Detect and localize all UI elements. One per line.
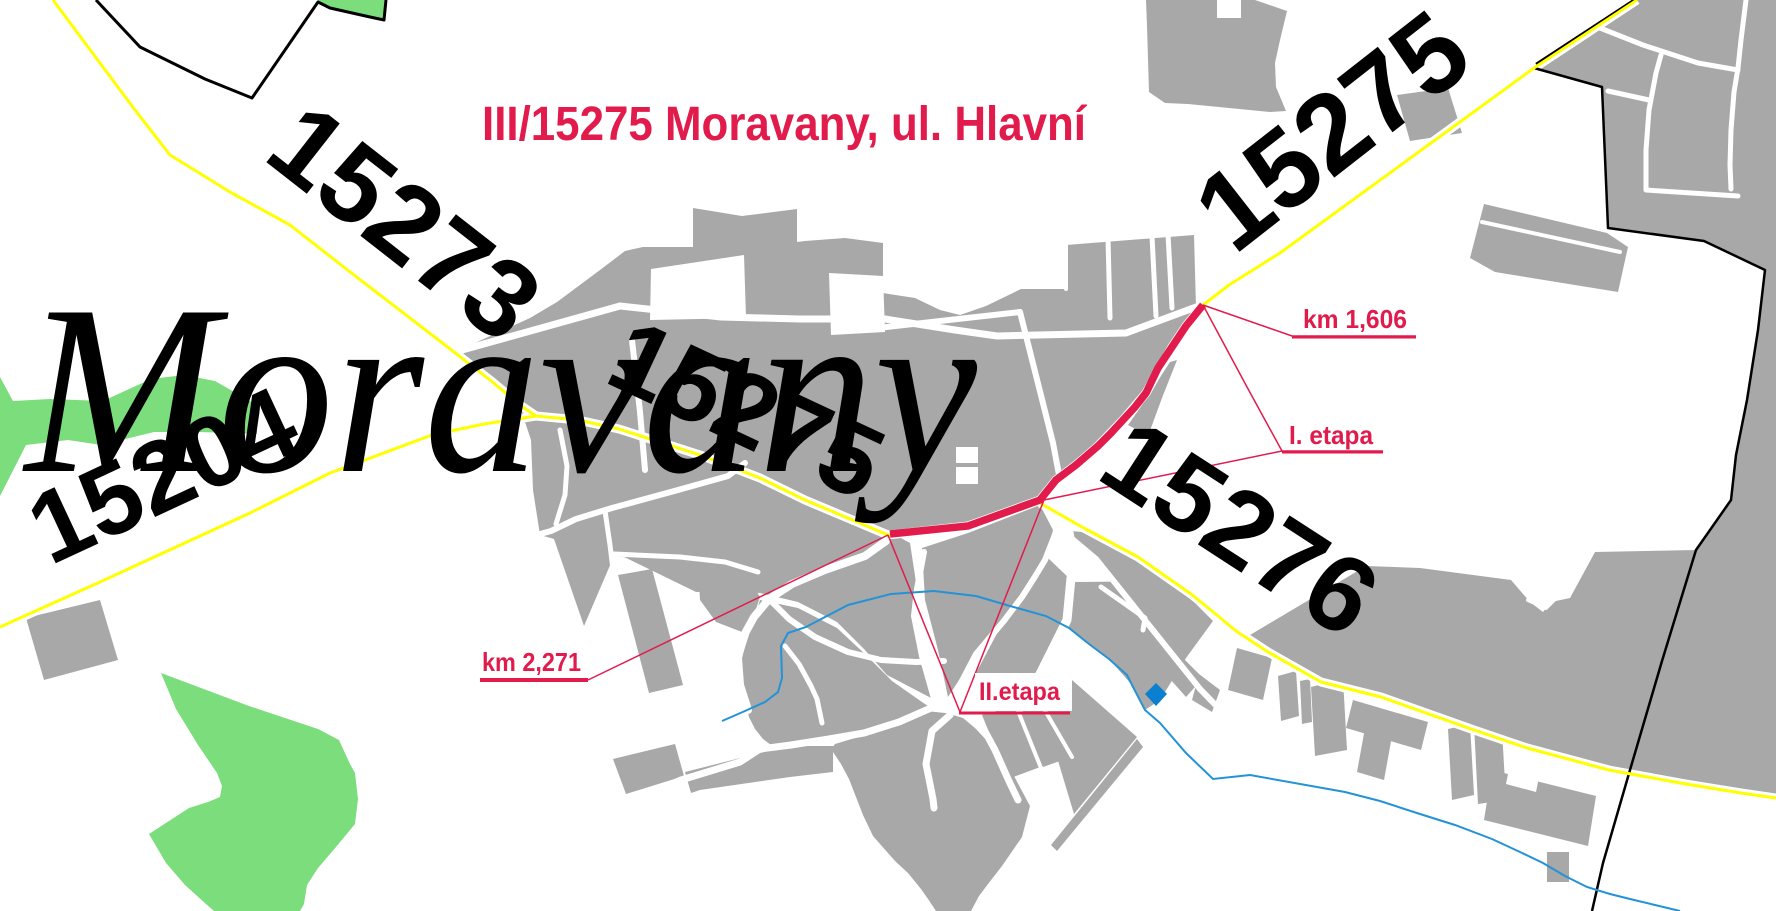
svg-text:km 1,606: km 1,606 <box>1303 304 1407 334</box>
svg-text:km 2,271: km 2,271 <box>482 647 581 677</box>
svg-text:Moravany: Moravany <box>22 256 977 524</box>
svg-text:I. etapa: I. etapa <box>1289 420 1374 450</box>
svg-text:III/15275 Moravany, ul. Hlavní: III/15275 Moravany, ul. Hlavní <box>482 98 1088 151</box>
svg-text:II.etapa: II.etapa <box>979 678 1061 706</box>
